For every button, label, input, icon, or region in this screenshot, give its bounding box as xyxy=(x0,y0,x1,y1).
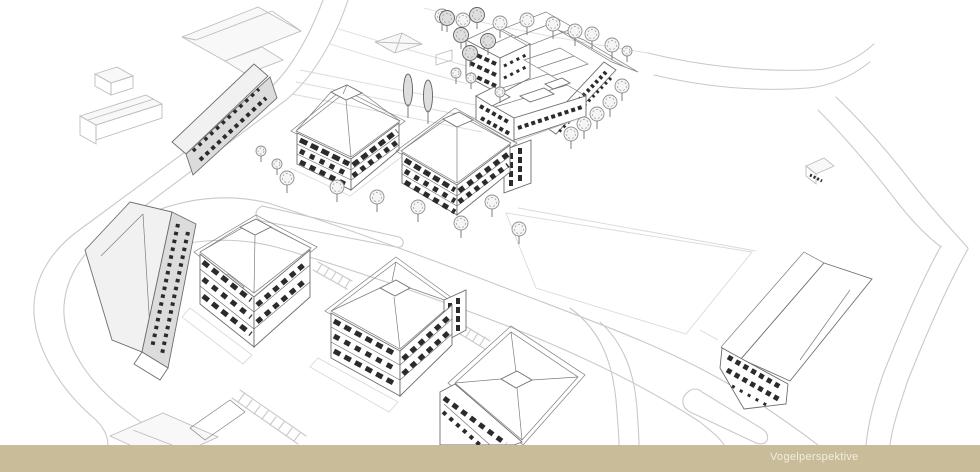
tree-icon xyxy=(564,127,578,149)
tree-icon xyxy=(603,95,617,117)
tree-icon xyxy=(615,79,629,101)
tree-icon xyxy=(485,195,499,217)
tree-icon xyxy=(622,46,632,62)
site-plan-drawing xyxy=(0,0,980,445)
tree-icon xyxy=(280,171,294,193)
tree-icon xyxy=(493,16,507,38)
slide: Vogelperspektive xyxy=(0,0,980,472)
tree-icon xyxy=(577,117,591,139)
building-east xyxy=(700,252,872,409)
tree-icon xyxy=(454,216,468,238)
building-slab-west xyxy=(85,202,196,380)
building-f3 xyxy=(440,326,585,445)
tree-icon xyxy=(512,222,526,244)
tree-icon xyxy=(272,159,282,175)
building-complex xyxy=(466,12,638,142)
poplar-tree-icon xyxy=(404,74,413,118)
tree-icon xyxy=(520,13,534,35)
tree-icon xyxy=(256,146,266,162)
tree-icon xyxy=(370,190,384,212)
caption-label: Vogelperspektive xyxy=(770,451,859,463)
building-b1 xyxy=(290,85,405,196)
building-f2 xyxy=(310,257,466,412)
tree-icon xyxy=(411,200,425,222)
trees xyxy=(256,8,632,245)
tree-icon xyxy=(590,107,604,129)
tree-icon xyxy=(470,8,485,30)
tree-icon xyxy=(330,180,344,202)
building-f1 xyxy=(182,215,317,364)
caption-bar: Vogelperspektive xyxy=(0,445,980,472)
poplar-tree-icon xyxy=(424,80,433,124)
tree-icon xyxy=(466,73,476,89)
